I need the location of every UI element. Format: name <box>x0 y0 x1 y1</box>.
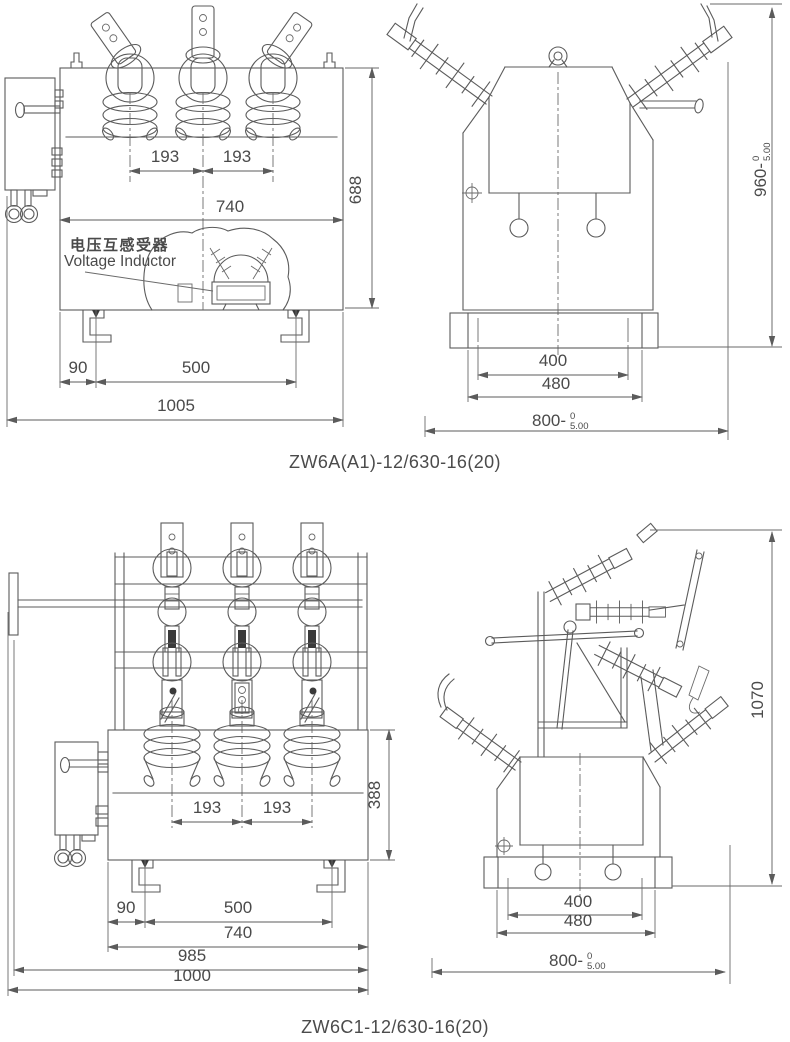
dim-800-2-tol-lower: 5.00 <box>587 961 606 972</box>
zw6c1-side-view-drawing: 1070 400 480 800- 0 5.00 <box>420 505 790 1005</box>
dim-740: 740 <box>216 197 244 216</box>
base-frame-2 <box>484 857 672 888</box>
dim-193-left: 193 <box>151 147 179 166</box>
callout-chinese: 电压互感受器 <box>70 236 169 254</box>
zw6a-side-view-drawing: 960- 0 5.00 400 480 800- 0 5.00 <box>395 0 790 440</box>
dim-400-2: 400 <box>564 892 592 911</box>
bushing-right <box>243 8 317 142</box>
dim-740-2: 740 <box>224 923 252 942</box>
dim-388: 388 <box>365 781 384 809</box>
dim-1005: 1005 <box>157 396 195 415</box>
side-bushing-left <box>382 4 498 112</box>
dim-1070: 1070 <box>748 681 767 719</box>
dim-500: 500 <box>182 358 210 377</box>
side-bushing-left-2 <box>436 674 526 777</box>
dim-985: 985 <box>178 946 206 965</box>
zw6a-front-view-drawing: 193 193 740 688 90 500 1005 电压互感受器 Volta… <box>0 0 395 440</box>
upper-insulator <box>542 523 657 608</box>
horizontal-insulator <box>576 601 684 623</box>
dim-800-tol-lower: 5.00 <box>570 421 589 432</box>
figure-caption-zw6a: ZW6A(A1)-12/630-16(20) <box>0 452 790 473</box>
mounting-feet-zw6c1 <box>132 860 345 928</box>
dim-480: 480 <box>542 374 570 393</box>
dimensions-side-zw6a: 960- 0 5.00 400 480 800- 0 5.00 <box>425 4 782 440</box>
dim-800: 800- <box>532 411 566 430</box>
tank-side-outline-2 <box>495 753 660 897</box>
dim-193-right-2: 193 <box>263 798 291 817</box>
dim-800-2: 800- <box>549 951 583 970</box>
side-bushing-right <box>621 4 737 115</box>
mechanism-box <box>5 78 63 223</box>
dim-960: 960- <box>751 163 770 197</box>
dim-1000: 1000 <box>173 966 211 985</box>
side-pipe <box>640 98 704 113</box>
base-frame <box>450 313 658 348</box>
bushing-left <box>85 8 159 142</box>
bushing-poles <box>85 6 318 142</box>
dim-193-left-2: 193 <box>193 798 221 817</box>
dimensions-front-zw6c1: 193 193 388 90 500 740 985 1000 <box>8 612 395 996</box>
dim-90: 90 <box>69 358 88 377</box>
dim-688: 688 <box>346 176 365 204</box>
lifting-eye <box>549 47 567 67</box>
dim-90-2: 90 <box>117 898 136 917</box>
dimensions-front-zw6a: 193 193 740 688 90 500 1005 <box>7 68 379 427</box>
lever-arm <box>676 550 704 650</box>
page: 193 193 740 688 90 500 1005 电压互感受器 Volta… <box>0 0 790 1042</box>
breaker-tank-outline <box>60 53 343 310</box>
lower-tank <box>108 730 368 860</box>
dim-960-tol-lower: 5.00 <box>762 143 773 162</box>
upper-frame <box>538 592 627 757</box>
mechanism-box-zw6c1 <box>55 742 109 867</box>
voltage-inductor-callout: 电压互感受器 Voltage Inductor <box>64 236 213 291</box>
dim-400: 400 <box>539 351 567 370</box>
dim-960-tol-upper: 0 <box>751 156 762 161</box>
dim-193-right: 193 <box>223 147 251 166</box>
dim-500-2: 500 <box>224 898 252 917</box>
figure-caption-zw6c1: ZW6C1-12/630-16(20) <box>0 1017 790 1038</box>
zw6c1-front-view-drawing: 193 193 388 90 500 740 985 1000 <box>0 505 420 1005</box>
dim-480-2: 480 <box>564 911 592 930</box>
callout-english: Voltage Inductor <box>64 253 176 270</box>
